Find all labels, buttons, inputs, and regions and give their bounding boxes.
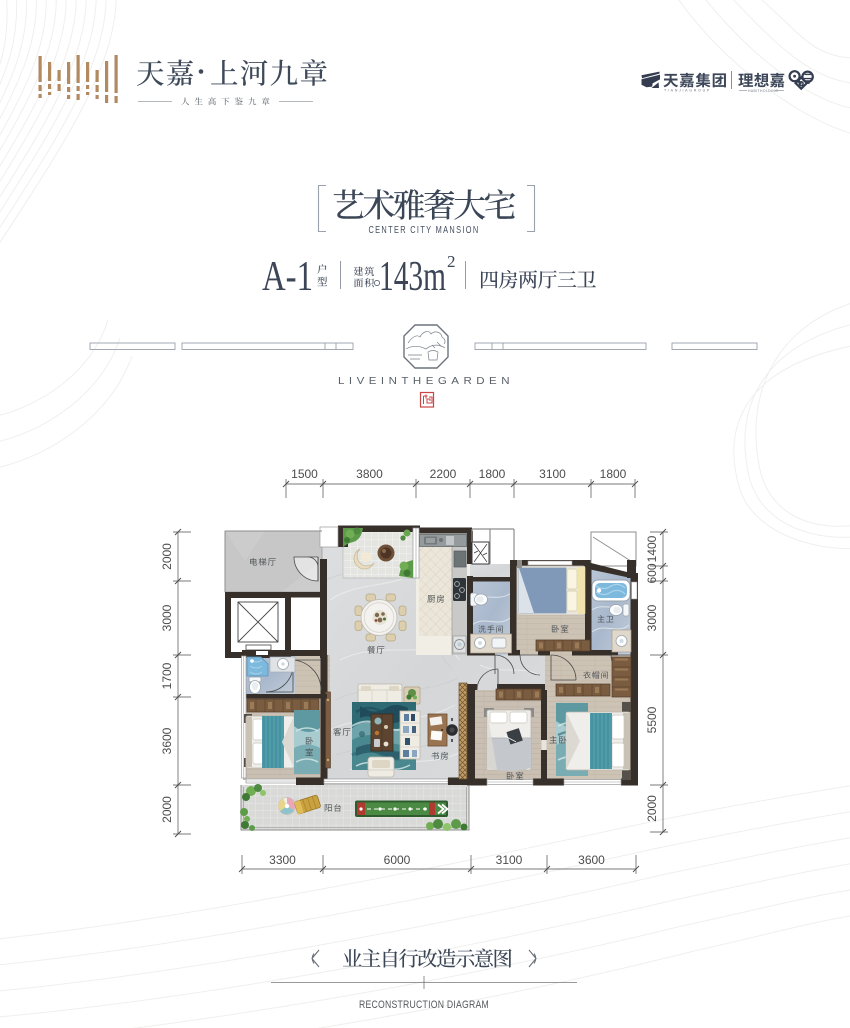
svg-text:CENTER CITY MANSION: CENTER CITY MANSION [369,224,480,236]
svg-text:3100: 3100 [539,467,566,481]
svg-text:3300: 3300 [269,853,296,867]
svg-text:3000: 3000 [645,604,659,631]
svg-text:RECONSTRUCTION DIAGRAM: RECONSTRUCTION DIAGRAM [359,999,489,1011]
svg-text:1400: 1400 [645,535,659,562]
svg-text:1500: 1500 [291,467,318,481]
svg-text:2000: 2000 [160,796,174,823]
svg-text:2: 2 [447,252,456,271]
svg-text:3100: 3100 [496,853,523,867]
svg-text:6000: 6000 [384,853,411,867]
svg-text:600: 600 [645,563,659,583]
svg-text:HABITHOLDING: HABITHOLDING [748,89,778,93]
svg-text:TIANJIAGROUP: TIANJIAGROUP [664,89,711,93]
svg-text:A-1: A-1 [262,254,313,300]
svg-text:143m: 143m [379,254,446,300]
svg-text:1800: 1800 [479,467,506,481]
svg-text:2000: 2000 [160,543,174,570]
svg-text:3600: 3600 [578,853,605,867]
svg-text:1700: 1700 [160,662,174,689]
svg-text:3800: 3800 [356,467,383,481]
svg-text:2200: 2200 [430,467,457,481]
svg-text:3600: 3600 [160,727,174,754]
svg-text:5500: 5500 [645,706,659,733]
svg-text:LIVEINTHEGARDEN: LIVEINTHEGARDEN [338,375,514,387]
svg-text:1800: 1800 [600,467,627,481]
svg-text:3000: 3000 [160,604,174,631]
svg-text:2000: 2000 [645,795,659,822]
